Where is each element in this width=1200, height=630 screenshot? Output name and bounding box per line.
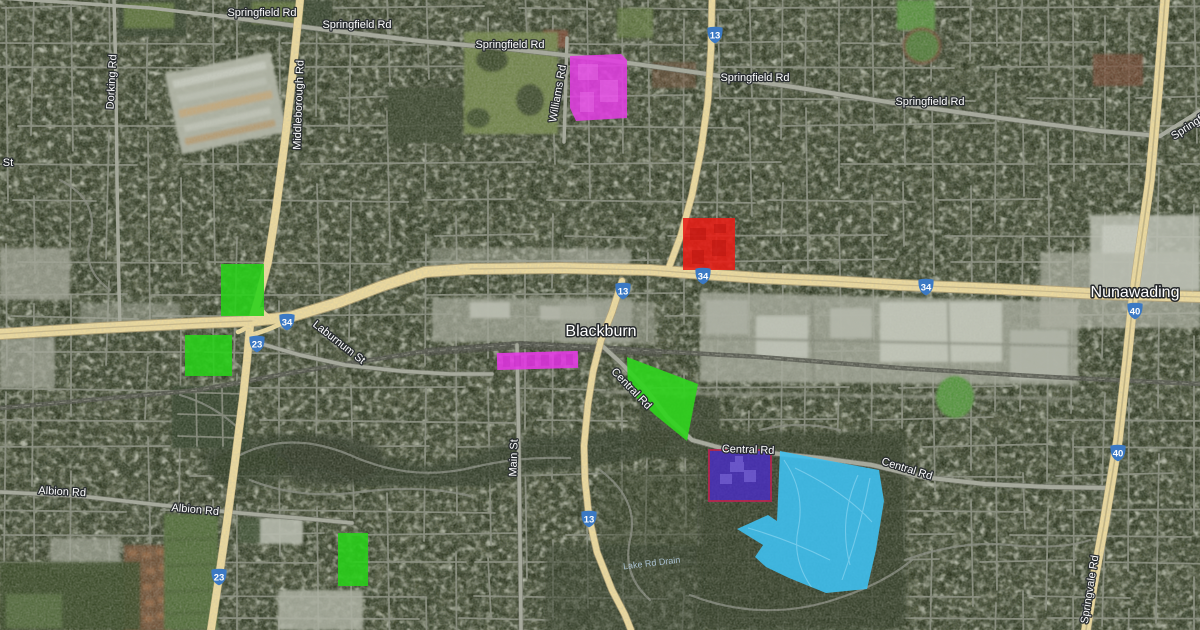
svg-text:23: 23 [252,339,263,350]
svg-text:13: 13 [618,286,629,297]
svg-text:Main St: Main St [507,439,520,477]
svg-text:Springfield Rd: Springfield Rd [322,19,391,31]
svg-text:13: 13 [710,30,721,41]
svg-text:Springfield Rd: Springfield Rd [895,96,964,108]
svg-text:Springfield Rd: Springfield Rd [227,7,296,19]
svg-text:Springfield Rd: Springfield Rd [475,39,544,51]
svg-text:Albion Rd: Albion Rd [38,485,86,499]
svg-text:23: 23 [214,572,225,583]
svg-text:40: 40 [1130,306,1141,317]
svg-text:34: 34 [282,317,293,328]
svg-text:Blackburn: Blackburn [565,323,636,340]
svg-text:40: 40 [1113,448,1124,459]
svg-text:Central Rd: Central Rd [722,443,775,457]
svg-text:34: 34 [921,282,932,293]
svg-text:13: 13 [584,514,595,525]
svg-text:34: 34 [698,271,709,282]
svg-text:Nunawading: Nunawading [1091,284,1180,301]
svg-text:Springfield Rd: Springfield Rd [720,72,789,84]
svg-text:St: St [3,157,13,169]
